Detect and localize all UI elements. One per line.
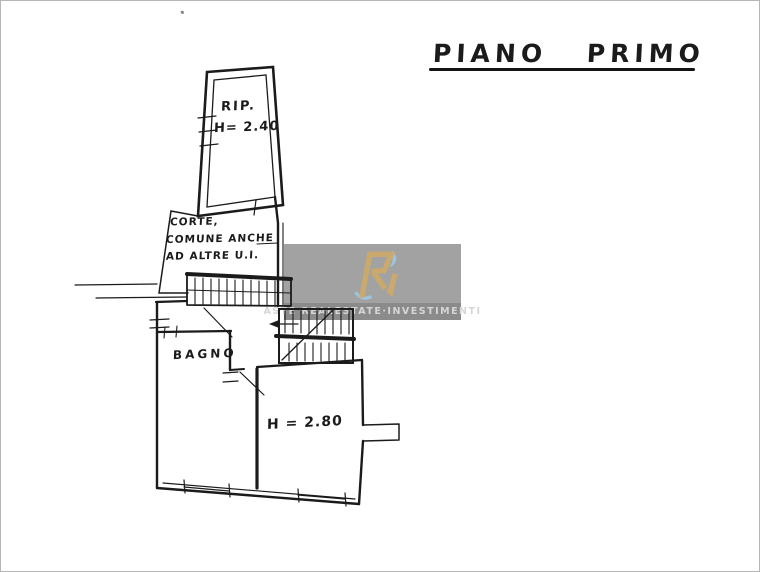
corte-label-line1: CORTE, [170,216,219,229]
bagno-opening-ticks [223,372,238,382]
left-window-ticks [150,319,169,328]
corte-label-line2: COMUNE ANCHE [166,232,275,246]
title-underline [429,68,695,71]
arrow-head-icon [269,320,279,328]
bagno-top-wall [158,331,231,332]
top-dot-mark [181,11,184,14]
rip-room-label: RIP. [221,98,257,114]
floor-plan-drawing [1,1,760,572]
main-block-walls [75,284,399,506]
staircase-lower [269,309,354,363]
page-title: PIANO PRIMO [432,39,705,68]
rip-room-walls [198,67,283,216]
right-notch [363,424,399,441]
bagno-room-label: BAGNO [173,346,237,362]
door-swing-2 [240,372,264,395]
door-swing [204,308,232,337]
right-wall [359,360,363,504]
boundary-lines [75,284,187,298]
corte-label-line3: AD ALTRE U.I. [166,249,260,263]
staircase-upper [187,274,291,306]
floor-plan-page: ASTE REALESTATE·INVESTIMENTI [0,0,760,572]
rip-height-label: H= 2.40 [214,119,280,136]
stair-midbar [276,336,354,339]
